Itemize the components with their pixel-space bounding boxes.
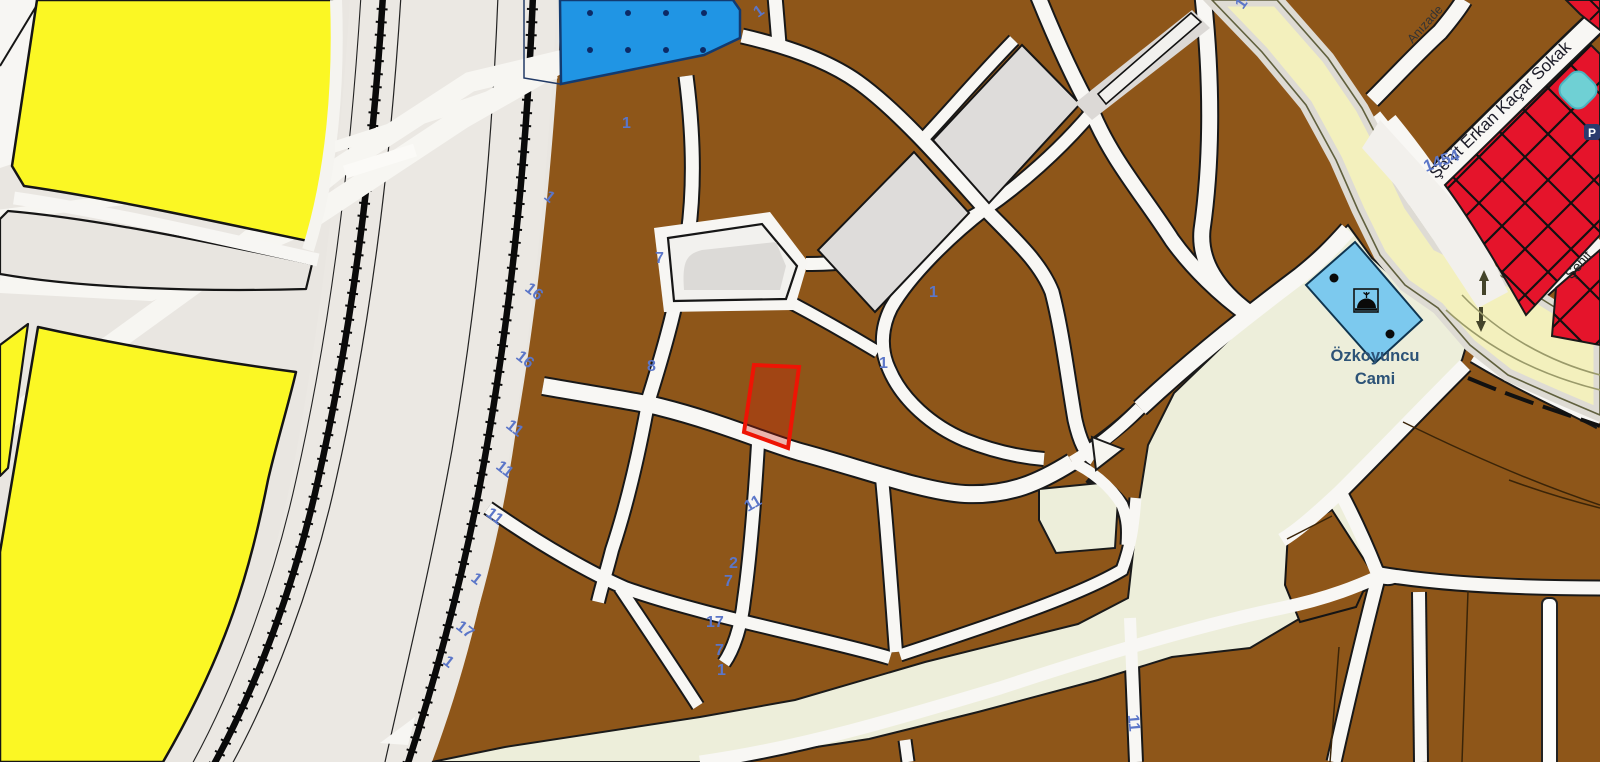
svg-text:11: 11 — [1124, 714, 1142, 732]
svg-text:Cami: Cami — [1355, 370, 1395, 388]
svg-text:1: 1 — [879, 355, 888, 372]
svg-text:2: 2 — [729, 555, 738, 572]
svg-text:7: 7 — [724, 573, 733, 590]
svg-text:Özkoyuncu: Özkoyuncu — [1331, 346, 1420, 365]
svg-text:7: 7 — [655, 250, 664, 267]
svg-text:7: 7 — [715, 642, 724, 659]
svg-text:1: 1 — [717, 662, 726, 679]
svg-text:1: 1 — [622, 115, 631, 132]
svg-text:8: 8 — [647, 358, 656, 375]
svg-text:P: P — [1588, 126, 1596, 140]
svg-text:17: 17 — [706, 614, 724, 631]
svg-text:1: 1 — [929, 284, 938, 301]
